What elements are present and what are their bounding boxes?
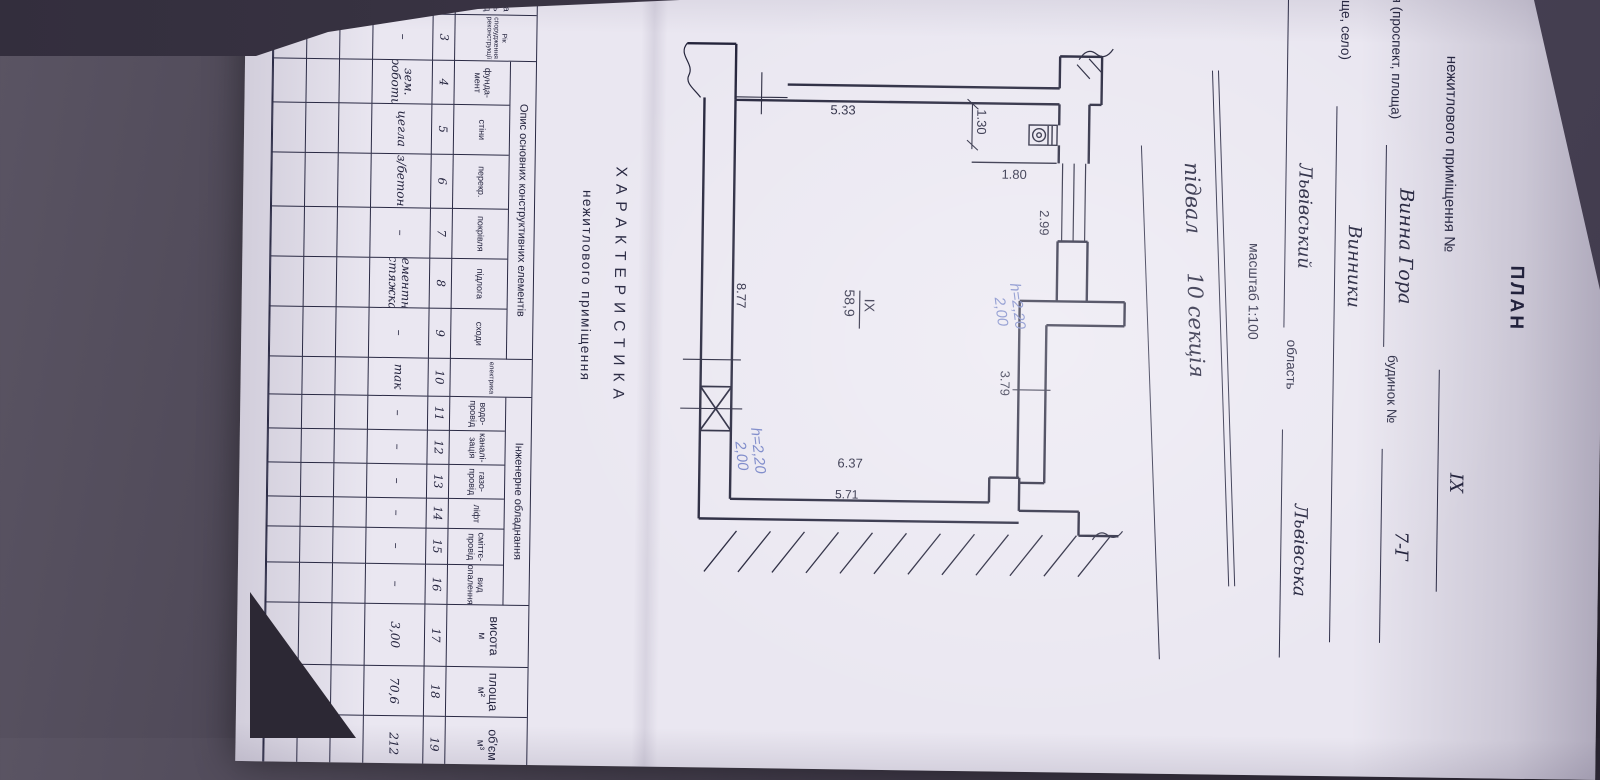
room-label: ІХ 58,9 (841, 289, 878, 328)
col-year-empty-row (339, 13, 373, 59)
col-floor-empty-row (270, 256, 304, 306)
break-line-top-left (1077, 49, 1113, 79)
left-door-opening (735, 72, 788, 115)
col-volume-empty-row (329, 715, 363, 771)
col-walls-number: 5 (431, 105, 454, 155)
col-floor-value: цементнастяжка (369, 258, 430, 309)
col-area-empty-row (297, 665, 331, 715)
svg-text:2,00: 2,00 (991, 295, 1012, 328)
col-water-empty-row (334, 395, 367, 429)
col-sewerage-header: каналі-зація (448, 431, 504, 466)
col-walls-empty-row (338, 103, 372, 153)
street-label: вулиця (проспект, площа) (1388, 0, 1405, 119)
dim-right-height-inner: 6.37 (837, 455, 863, 470)
dim-right-height-outer: 5.71 (835, 487, 859, 501)
col-name-empty-row (274, 0, 308, 13)
group-engineering-equipment: Інженерне обладнання (502, 398, 531, 606)
col-height-empty-row (265, 602, 299, 664)
col-gas-empty-row (267, 462, 300, 496)
region-label: область (1284, 340, 1300, 390)
dim-closet-width: 1.30 (974, 109, 989, 135)
section-floor: підвал (1180, 162, 1206, 234)
col-year-empty-row (306, 13, 340, 59)
break-line-bottom-left (683, 43, 701, 97)
col-foundation-header: фунда-мент (453, 61, 510, 106)
col-lift-empty-row (267, 496, 300, 526)
col-gas-number: 13 (426, 465, 448, 499)
section-number: 10 секція (1183, 272, 1210, 378)
col-gas-empty-row (333, 463, 366, 497)
col-roof-empty-row (336, 207, 370, 257)
col-area-value: 70,6 (363, 666, 424, 717)
col-ceiling-empty-row (271, 152, 305, 206)
col-sewerage-number: 12 (426, 431, 448, 465)
col-heating-empty-row (265, 562, 299, 602)
col-year-empty-row (273, 12, 307, 58)
characteristics-table: Назвабудівельспоруд2нежитловеприміщенняР… (262, 0, 539, 775)
floor-plan: 1.30 1.80 2.99 3.79 5.33 6.37 5.71 8.77 … (658, 33, 1136, 600)
col-name-empty-row (307, 0, 341, 13)
col-ceiling-empty-row (337, 153, 371, 207)
col-lift-value: – (366, 498, 426, 529)
col-area-number: 18 (423, 667, 446, 717)
col-roof-empty-row (303, 207, 337, 257)
col-floor-number: 8 (429, 259, 452, 309)
dim-tick-recess (1013, 390, 1051, 391)
premises-label: нежитлового приміщення № (1440, 56, 1460, 253)
col-heating-empty-row (331, 563, 365, 603)
col-electricity-header: електрика (449, 359, 532, 398)
dim-left-height: 5.33 (830, 102, 856, 117)
sink-icon (1029, 125, 1057, 145)
col-walls-empty-row (272, 102, 306, 152)
street-value: Винна Гора (1393, 145, 1418, 347)
col-name-value: нежитловеприміщення (373, 0, 434, 15)
col-walls-value: цегла (371, 104, 432, 155)
district-value: Львівський (1293, 114, 1317, 319)
col-heating-header: видопалення (446, 565, 503, 606)
col-chute-empty-row (266, 526, 299, 562)
col-ceiling-header: перекр. (452, 155, 509, 210)
building-no: 7-Г (1389, 449, 1413, 643)
col-heating-value: – (364, 564, 425, 605)
col-roof-value: – (369, 208, 430, 259)
col-sewerage-empty-row (300, 429, 333, 463)
col-electricity-empty-row (334, 357, 368, 395)
dim-recess-width: 3.79 (997, 371, 1012, 397)
wall-left (788, 85, 1060, 105)
col-gas-value: – (366, 464, 426, 499)
section-note: підвал 10 секція (1180, 162, 1210, 378)
col-chute-empty-row (299, 527, 332, 563)
col-volume-header: об'ємм³ (444, 717, 527, 774)
col-lift-header: ліфт (448, 499, 504, 530)
col-ceiling-empty-row (304, 153, 338, 207)
dim-opening-width: 2.99 (1037, 210, 1052, 236)
settlement-label: (селище, село) (1338, 0, 1354, 60)
col-foundation-empty-row (272, 58, 306, 102)
col-ceiling-value: з/бетон (370, 154, 431, 209)
col-height-empty-row (331, 603, 365, 665)
height-note-2: h=2,20 2,00 (729, 426, 769, 477)
document-page: ПЛАН нежитлового приміщення № ІХ вулиця … (235, 0, 1600, 780)
col-chute-header: сміттє-провід (447, 529, 503, 566)
col-volume-number: 19 (422, 717, 445, 773)
col-electricity-empty-row (268, 356, 302, 394)
col-sewerage-empty-row (333, 429, 366, 463)
col-water-number: 11 (427, 397, 449, 431)
single-rule (1141, 146, 1160, 660)
col-foundation-value: зем.роботи (371, 60, 432, 105)
col-gas-empty-row (300, 463, 333, 497)
col-foundation-number: 4 (431, 61, 454, 105)
scale-label: масштаб 1:100 (1245, 243, 1262, 340)
col-floor-empty-row (336, 257, 370, 307)
svg-text:2,00: 2,00 (731, 439, 751, 472)
col-sewerage-value: – (366, 430, 426, 465)
col-heating-empty-row (298, 563, 332, 603)
col-chute-empty-row (332, 527, 365, 563)
region-value: Львівська (1288, 448, 1312, 653)
premises-no: ІХ (1444, 398, 1467, 568)
characteristics-subtitle: нежитлового приміщення (575, 0, 598, 586)
col-electricity-empty-row (301, 357, 335, 395)
settlement-value: Винники (1342, 174, 1366, 358)
col-chute-value: – (365, 528, 425, 565)
col-foundation-empty-row (338, 59, 372, 103)
hatching-right (704, 530, 1111, 577)
col-roof-number: 7 (429, 209, 452, 259)
group-structural-elements: Опис основних конструктивних елементів (506, 62, 536, 360)
col-year-value: – (372, 14, 433, 61)
col-lift-empty-row (333, 497, 366, 527)
paper-crease (631, 0, 668, 767)
col-name-empty-row (340, 0, 374, 14)
col-walls-empty-row (305, 103, 339, 153)
col-stairs-empty-row (335, 307, 369, 357)
characteristics-title: ХАРАКТЕРИСТИКА (606, 0, 632, 586)
col-height-header: висотам (446, 605, 529, 668)
col-volume-empty-row (296, 715, 330, 771)
col-lift-empty-row (300, 497, 333, 527)
col-roof-header: покрівля (451, 209, 508, 260)
col-water-empty-row (268, 394, 301, 428)
height-note-1: h=2,20 2,00 (988, 282, 1029, 334)
col-height-number: 17 (424, 605, 447, 667)
col-volume-empty-row (263, 714, 297, 770)
closet-partition (972, 162, 1057, 163)
col-gas-header: газо-провід (448, 465, 504, 500)
col-floor-header: підлога (451, 259, 508, 310)
room-area: 58,9 (842, 289, 858, 317)
page-title: ПЛАН (1501, 0, 1531, 599)
col-water-value: – (367, 396, 427, 431)
col-stairs-header: сходи (450, 309, 507, 360)
col-year-header: Рікспорудженняреконструкції (454, 15, 537, 62)
col-height-empty-row (298, 603, 332, 665)
col-floor-empty-row (303, 257, 337, 307)
col-water-empty-row (301, 395, 334, 429)
col-stairs-value: – (368, 308, 429, 359)
building-label: будинок № (1384, 355, 1400, 423)
col-sewerage-empty-row (267, 428, 300, 462)
col-heating-number: 16 (424, 565, 447, 605)
col-stairs-number: 9 (428, 309, 451, 359)
col-height-value: 3,00 (364, 604, 425, 667)
top-opening-lines (1062, 163, 1086, 241)
col-walls-header: стіни (453, 105, 510, 156)
col-chute-number: 15 (425, 529, 448, 565)
photo-scene: ПЛАН нежитлового приміщення № ІХ вулиця … (0, 0, 1600, 738)
dim-closet-height: 1.80 (1001, 167, 1027, 182)
col-electricity-number: 10 (427, 359, 450, 397)
dim-bottom-width: 8.77 (734, 283, 749, 309)
col-year-number: 3 (432, 15, 455, 61)
col-volume-value: 212 (362, 716, 423, 773)
col-roof-empty-row (270, 206, 304, 256)
col-ceiling-number: 6 (430, 155, 453, 209)
col-water-header: водо-провід (449, 397, 505, 432)
col-foundation-empty-row (305, 59, 339, 103)
col-name-number: 2 (433, 0, 456, 15)
col-name-header: Назвабудівельспоруд (455, 0, 538, 16)
double-rule (1212, 70, 1235, 586)
col-area-header: площам² (445, 667, 528, 718)
col-stairs-empty-row (302, 307, 336, 357)
col-area-empty-row (330, 665, 364, 715)
wall-stub-top-left (1059, 56, 1102, 105)
col-lift-number: 14 (426, 499, 448, 529)
room-no: ІХ (862, 299, 878, 313)
col-stairs-empty-row (269, 306, 303, 356)
wall-right (699, 498, 1019, 522)
col-area-empty-row (264, 664, 298, 714)
col-electricity-value: так (367, 358, 428, 397)
